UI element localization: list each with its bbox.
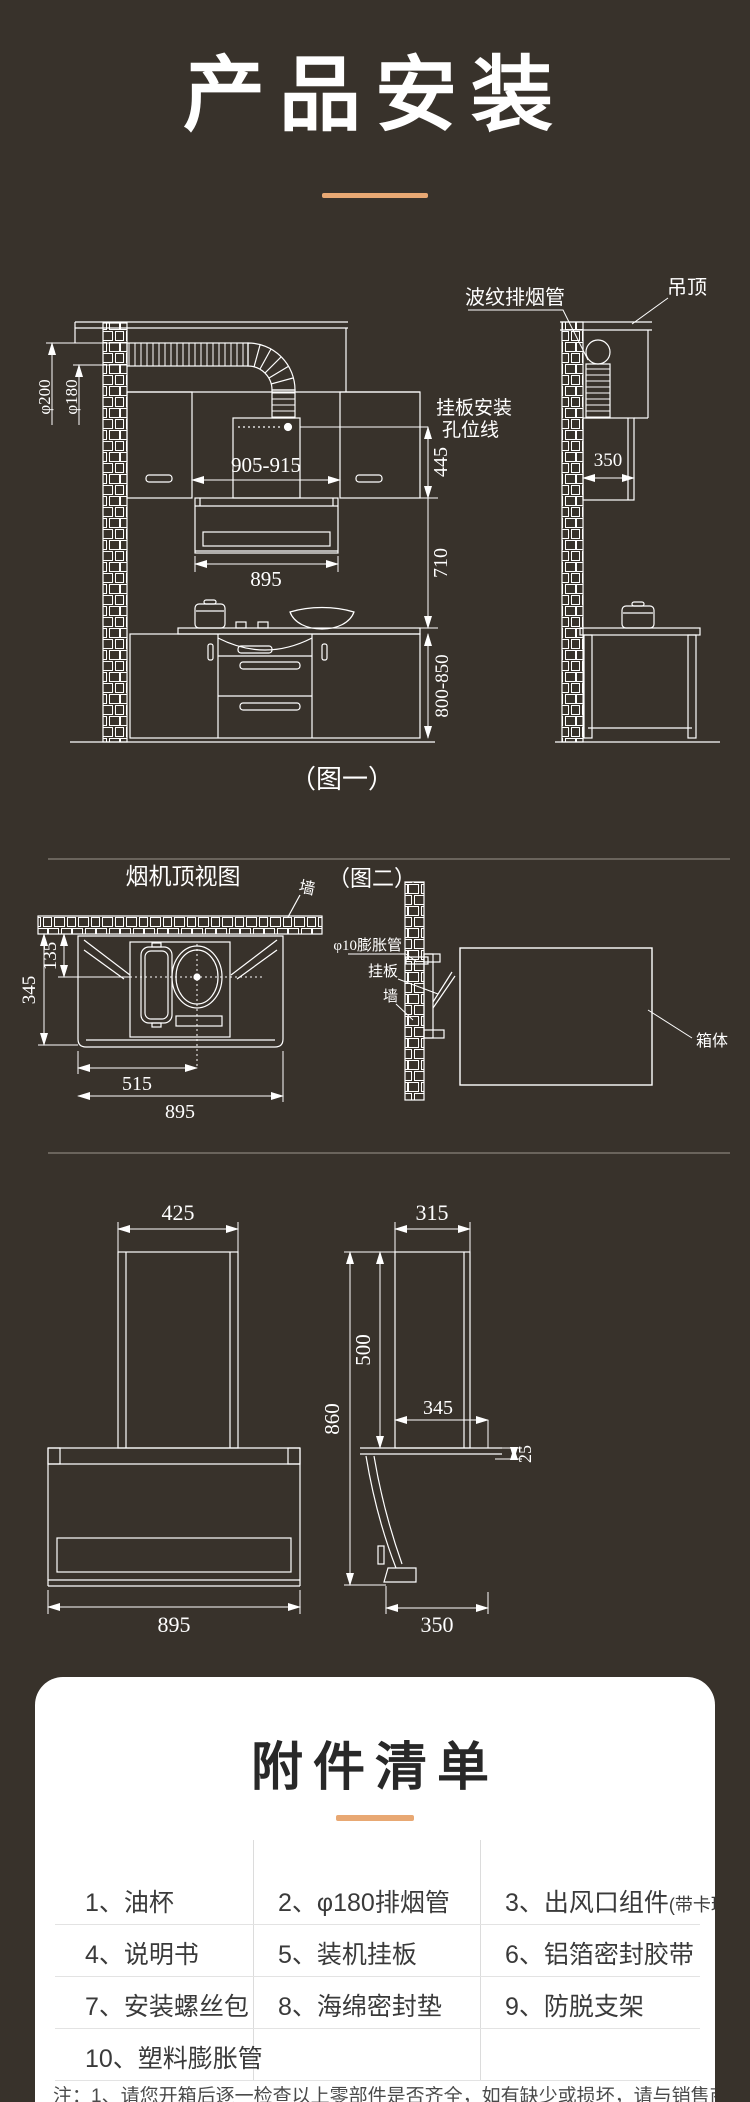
fig1-bowl <box>290 608 354 630</box>
fig2-label-wall-top: 墙 <box>297 878 316 899</box>
accessory-item: 5、装机挂板 <box>278 1935 417 1971</box>
accessory-item: 6、铝箔密封胶带 <box>505 1935 694 1971</box>
fig1-rice-cooker-side <box>622 606 654 628</box>
fig1-label-corrugated-pipe: 波纹排烟管 <box>465 286 565 309</box>
fig1-dim-hole-span: 905-915 <box>231 453 301 477</box>
fig2-dim-345: 345 <box>19 976 40 1005</box>
fig3-dim-25: 25 <box>515 1445 535 1463</box>
fig3-dim-350: 350 <box>421 1612 454 1637</box>
fig3-front-view <box>48 1252 300 1586</box>
accessory-item: 3、出风口组件(带卡环) <box>505 1883 715 1919</box>
fig1-right-view <box>555 322 720 742</box>
accessories-accent-dash <box>336 1815 414 1821</box>
fig1-label-hang-plate-2: 孔位线 <box>442 419 499 441</box>
fig2-dimensions <box>38 934 283 1102</box>
page-title: 产品安装 <box>0 28 750 147</box>
fig1-dim-445: 445 <box>430 447 452 477</box>
accessory-item: 1、油杯 <box>85 1883 174 1919</box>
fig2-wall-strip <box>38 916 322 934</box>
fig1-dim-phi200: φ200 <box>35 379 54 414</box>
fig3-dim-500: 500 <box>351 1334 375 1366</box>
fig3-dim-895: 895 <box>158 1612 191 1637</box>
fig2-title: 烟机顶视图 <box>126 864 241 889</box>
fig2-label-expansion-tube: φ10膨胀管 <box>333 937 402 954</box>
fig2-hang-plate-shape <box>424 954 433 1038</box>
fig3-side-swoosh <box>366 1456 396 1568</box>
figure-2-topview-diagram: 烟机顶视图 （图二） 墙 345 135 515 895 φ10膨胀管 挂板 墙… <box>0 862 750 1150</box>
table-row-divider-2 <box>55 1976 700 1977</box>
fig1-rice-cooker <box>195 604 225 628</box>
fig2-dim-135: 135 <box>40 942 61 971</box>
fig3-dim-860: 860 <box>320 1403 344 1435</box>
fig1-countertop <box>178 628 420 634</box>
fig1-dim-800-850: 800-850 <box>432 654 453 717</box>
table-row-divider-1 <box>55 1924 700 1925</box>
accessory-item: 2、φ180排烟管 <box>278 1883 450 1919</box>
accessory-item: 7、安装螺丝包 <box>85 1987 249 2023</box>
fig2-label-hang-plate: 挂板 <box>368 962 398 980</box>
fig1-brick-wall <box>103 323 127 742</box>
accessory-item: 9、防脱支架 <box>505 1987 644 2023</box>
fig1-dim-phi180: φ180 <box>62 379 81 414</box>
fig1-label-ceiling: 吊顶 <box>667 277 707 299</box>
fig1-left-view <box>70 322 435 742</box>
fig1-right-brick-wall <box>562 322 583 742</box>
fig1-table-top <box>580 628 700 635</box>
figure-3-outline-diagram: 425 895 315 500 860 345 25 350 <box>0 1162 750 1677</box>
fig1-dim-710: 710 <box>430 548 452 578</box>
accessories-card: 附件清单 1、油杯 2、φ180排烟管 3、出风口组件(带卡环) 4、说明书 5… <box>35 1677 715 2102</box>
table-row-divider-3 <box>55 2028 700 2029</box>
fig1-duct-end-view <box>586 340 610 364</box>
table-column-divider-2 <box>480 1840 481 2080</box>
fig2-top-view <box>38 895 322 1068</box>
fig2-filter <box>141 947 172 1023</box>
fig1-corrugated-duct <box>127 343 248 366</box>
fig1-dim-895: 895 <box>250 567 282 591</box>
product-install-page: 产品安装 <box>0 0 750 2102</box>
fig2-wall-column <box>405 882 424 1100</box>
fig2-caption: （图二） <box>328 866 416 891</box>
title-accent-dash <box>322 193 428 198</box>
fig2-label-wall-side: 墙 <box>383 988 398 1005</box>
fig3-dim-315: 315 <box>416 1200 449 1225</box>
accessory-item: 8、海绵密封垫 <box>278 1987 442 2023</box>
check-parts-note: 注：1、请您开箱后逐一检查以上零部件是否齐全，如有缺少或损坏，请与销售商联系 <box>53 2081 715 2102</box>
fig1-dim-350: 350 <box>594 450 623 471</box>
fig1-label-hang-plate-1: 挂板安装 <box>436 397 512 419</box>
section-divider-1 <box>48 858 730 860</box>
section-divider-2 <box>48 1152 730 1154</box>
fig3-dim-425: 425 <box>162 1200 195 1225</box>
accessory-item: 4、说明书 <box>85 1935 199 1971</box>
fig1-caption: （图一） <box>290 765 394 794</box>
fig3-front-chimney <box>118 1252 238 1448</box>
fig2-box-outline <box>460 948 652 1085</box>
fig2-bracket-detail <box>348 882 692 1100</box>
fig3-dim-345: 345 <box>423 1397 453 1419</box>
figure-1-installation-diagram: 波纹排烟管 吊顶 挂板安装 孔位线 φ200 φ180 905-915 445 … <box>0 210 750 810</box>
fig2-dim-895: 895 <box>165 1101 195 1123</box>
fig2-label-box-body: 箱体 <box>696 1032 728 1050</box>
fig2-dim-515: 515 <box>122 1073 152 1095</box>
accessories-title: 附件清单 <box>35 1725 715 1800</box>
accessory-item: 10、塑料膨胀管 <box>85 2039 263 2075</box>
